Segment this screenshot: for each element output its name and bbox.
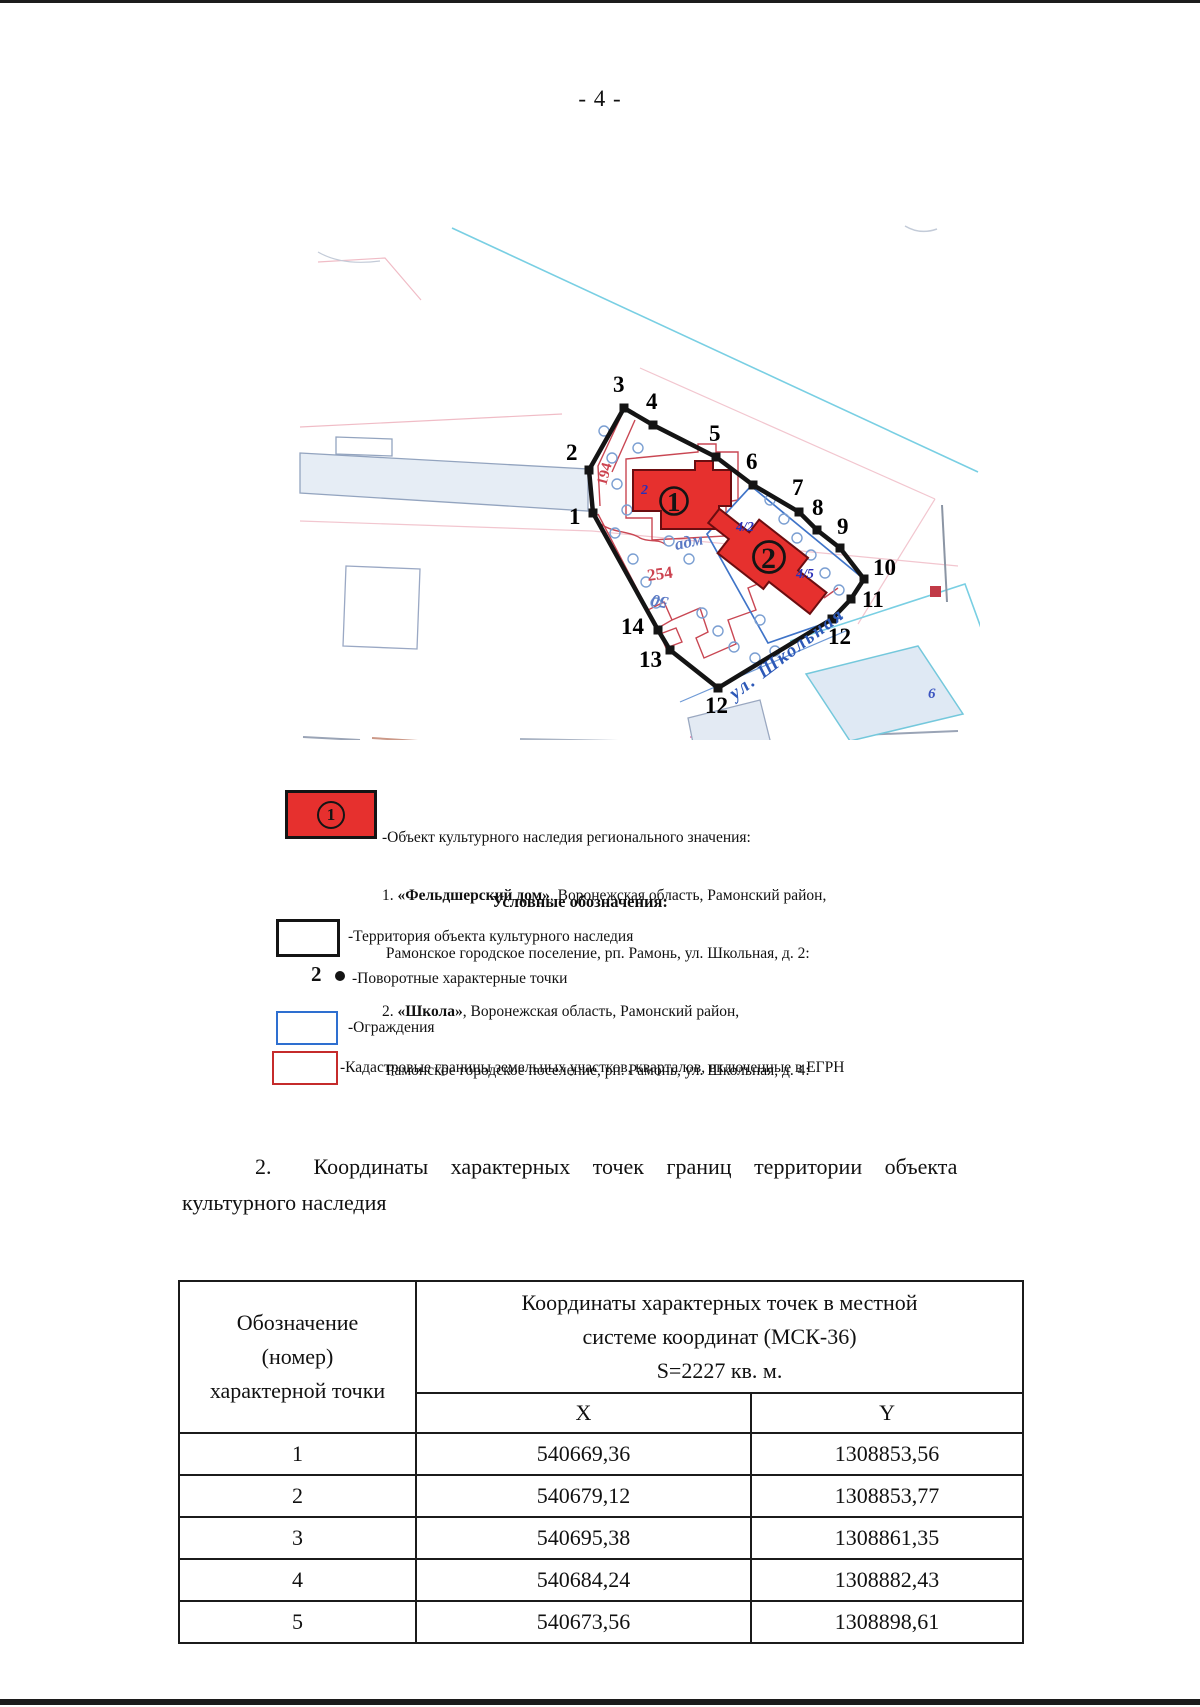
building-6-label: 6 [928,686,936,702]
coords-table-body: 1540669,361308853,562540679,121308853,77… [179,1433,1023,1643]
building-2-house-number-1: 4/2 [735,520,754,535]
boundary-point-label: 5 [709,421,721,446]
site-plan-map: 2 1 4/2 4/5 2 123456789101112121314 194 … [280,215,980,740]
page-top-border [0,0,1200,3]
building-1-house-number: 2 [640,483,648,498]
legend-points-label: -Поворотные характерные точки [352,970,567,988]
boundary-point-label: 2 [566,440,578,465]
table-cell: 540684,24 [416,1559,751,1601]
legend-line: -Объект культурного наследия регионально… [382,828,826,847]
boundary-point-dot [795,508,804,517]
table-header-row: Обозначение (номер) характерной точки Ко… [179,1281,1023,1393]
boundary-point-label: 4 [646,389,658,414]
table-cell: 540669,36 [416,1433,751,1475]
header-x: X [416,1393,751,1433]
table-cell: 1308898,61 [751,1601,1023,1643]
boundary-point-label: 9 [837,514,849,539]
boundary-point-label: 7 [792,475,804,500]
legend-object-swatch: 1 [285,790,377,839]
section-number: 2. [255,1154,272,1179]
table-row: 5540673,561308898,61 [179,1601,1023,1643]
table-cell: 2 [179,1475,416,1517]
boundary-point-dot [654,626,663,635]
section-heading-line1: 2.Координаты характерных точек границ те… [255,1154,957,1180]
site-plan-svg: 2 1 4/2 4/5 2 123456789101112121314 194 … [280,215,980,740]
section-title: Координаты характерных точек границ терр… [314,1154,958,1179]
boundary-point-label: 12 [705,693,728,718]
coordinates-table: Обозначение (номер) характерной точки Ко… [178,1280,1024,1644]
document-page: - 4 - [0,0,1200,1707]
legend-point-number: 2 [311,962,322,987]
table-cell: 1308853,56 [751,1433,1023,1475]
legend-territory-swatch [276,919,340,957]
legend-object-symbol: 1 [317,801,345,829]
boundary-point-label: 1 [569,504,581,529]
boundary-point-label: 8 [812,495,824,520]
boundary-point-dot [585,466,594,475]
header-y: Y [751,1393,1023,1433]
table-row: 1540669,361308853,56 [179,1433,1023,1475]
legend-territory-label: -Территория объекта культурного наследия [348,928,633,946]
legend-cadastre-label: -Кадастровые границы земельных участков,… [340,1059,844,1077]
boundary-point-dot [620,404,629,413]
boundary-point-dot [649,421,658,430]
table-cell: 3 [179,1517,416,1559]
table-cell: 540673,56 [416,1601,751,1643]
boundary-point-label: 3 [613,372,625,397]
boundary-point-dot [749,481,758,490]
table-cell: 1308853,77 [751,1475,1023,1517]
boundary-point-label: 11 [862,587,884,612]
boundary-point-dot [712,453,721,462]
parcel-label-adm: адм [673,529,705,554]
table-row: 2540679,121308853,77 [179,1475,1023,1517]
boundary-point-label: 6 [746,449,758,474]
boundary-point-label: 10 [873,555,896,580]
table-row: 4540684,241308882,43 [179,1559,1023,1601]
table-cell: 1308882,43 [751,1559,1023,1601]
legend-fence-swatch [276,1011,338,1045]
legend-line: Рамонское городское поселение, рп. Рамон… [382,944,826,963]
boundary-point-dot [847,595,856,604]
legend-cadastre-swatch [272,1051,338,1085]
building-1-number: 1 [667,487,681,517]
page-bottom-border [0,1699,1200,1705]
table-cell: 1 [179,1433,416,1475]
building-2-number: 2 [761,542,776,575]
table-row: 3540695,381308861,35 [179,1517,1023,1559]
parcel-label-50: 50 [649,590,670,612]
table-cell: 4 [179,1559,416,1601]
boundary-point-label: 14 [621,614,645,639]
boundary-point-dot [836,544,845,553]
boundary-point-dot [714,684,723,693]
table-cell: 5 [179,1601,416,1643]
table-cell: 540679,12 [416,1475,751,1517]
header-coordinate-system: Координаты характерных точек в местной с… [416,1281,1023,1393]
boundary-point-dot [666,646,675,655]
building-2-house-number-2: 4/5 [795,567,814,582]
boundary-point-dot [860,575,869,584]
boundary-point-dot [813,526,822,535]
page-number: - 4 - [0,86,1200,112]
section-heading-line2: культурного наследия [182,1190,387,1216]
table-cell: 1308861,35 [751,1517,1023,1559]
legend-line: 2. «Школа», Воронежская область, Рамонск… [382,1002,826,1021]
table-cell: 540695,38 [416,1517,751,1559]
legend-title: Условные обозначения: [280,892,880,912]
parcel-label-254: 254 [646,563,674,585]
legend-fence-label: -Ограждения [348,1019,435,1037]
header-point-designation: Обозначение (номер) характерной точки [179,1281,416,1433]
boundary-point-dot [589,509,598,518]
legend-point-dot [335,971,345,981]
boundary-point-label: 13 [639,647,662,672]
